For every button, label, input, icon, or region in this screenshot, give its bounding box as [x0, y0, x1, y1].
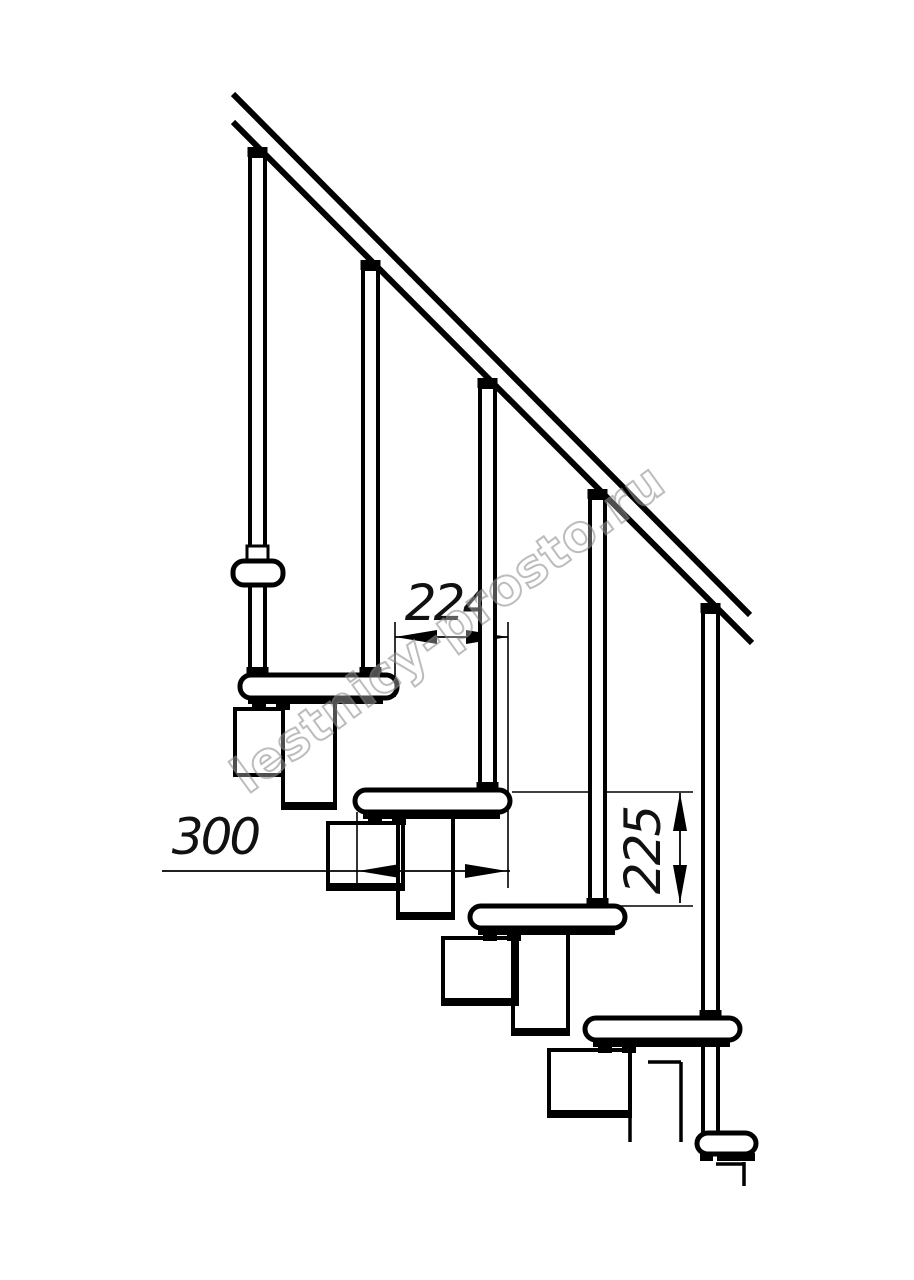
- clamp-step-2-tab-1: [368, 819, 382, 825]
- module-3b-fill: [549, 1050, 630, 1116]
- clamp-step-4-tab-1: [598, 1047, 612, 1053]
- drawing-canvas: 224300225lestnicy-prosto.ru: [0, 0, 914, 1280]
- clamp-step-end-lower-1: [700, 1153, 713, 1161]
- module-3b-bottom-bar: [547, 1110, 632, 1118]
- step-4: [585, 1018, 740, 1040]
- dim-300-label: 300: [172, 808, 260, 866]
- module-3a-fill: [513, 929, 568, 1034]
- module-2b-fill: [443, 938, 517, 1004]
- module-2a-fill: [398, 815, 453, 918]
- clamp-step-3-tab-2: [507, 935, 521, 941]
- clamp-step-4-tab-2: [622, 1047, 636, 1053]
- step-end-lower-end-view: [697, 1133, 756, 1154]
- clamp-step-2-tab-2: [392, 819, 406, 825]
- baluster-5: [703, 612, 718, 1018]
- step-2: [355, 790, 510, 812]
- module-1b-fill: [328, 823, 403, 889]
- module-3a-bottom-bar: [511, 1028, 570, 1036]
- clamp-step-4-bar: [593, 1040, 730, 1047]
- module-1a-bottom-bar: [281, 802, 337, 810]
- module-2a-bottom-bar: [396, 912, 455, 920]
- clamp-step-3-bar: [478, 928, 615, 935]
- step-end-upper-end-view: [233, 561, 283, 585]
- baluster-1: [250, 156, 265, 675]
- staircase-drawing: 224300225lestnicy-prosto.ru: [0, 0, 914, 1280]
- clamp-step-3-tab-1: [483, 935, 497, 941]
- module-2b-bottom-bar: [441, 998, 519, 1006]
- clamp-step-1-tab-1: [252, 704, 266, 710]
- baluster-1-collar: [247, 546, 268, 560]
- step-3: [470, 906, 625, 928]
- baluster-2: [363, 269, 378, 675]
- module-1b-bottom-bar: [326, 883, 405, 891]
- baluster-5-lower-segment: [703, 1040, 718, 1133]
- clamp-step-2-bar: [363, 812, 500, 819]
- clamp-step-end-lower-2: [717, 1153, 755, 1161]
- dim-225-label: 225: [614, 807, 672, 895]
